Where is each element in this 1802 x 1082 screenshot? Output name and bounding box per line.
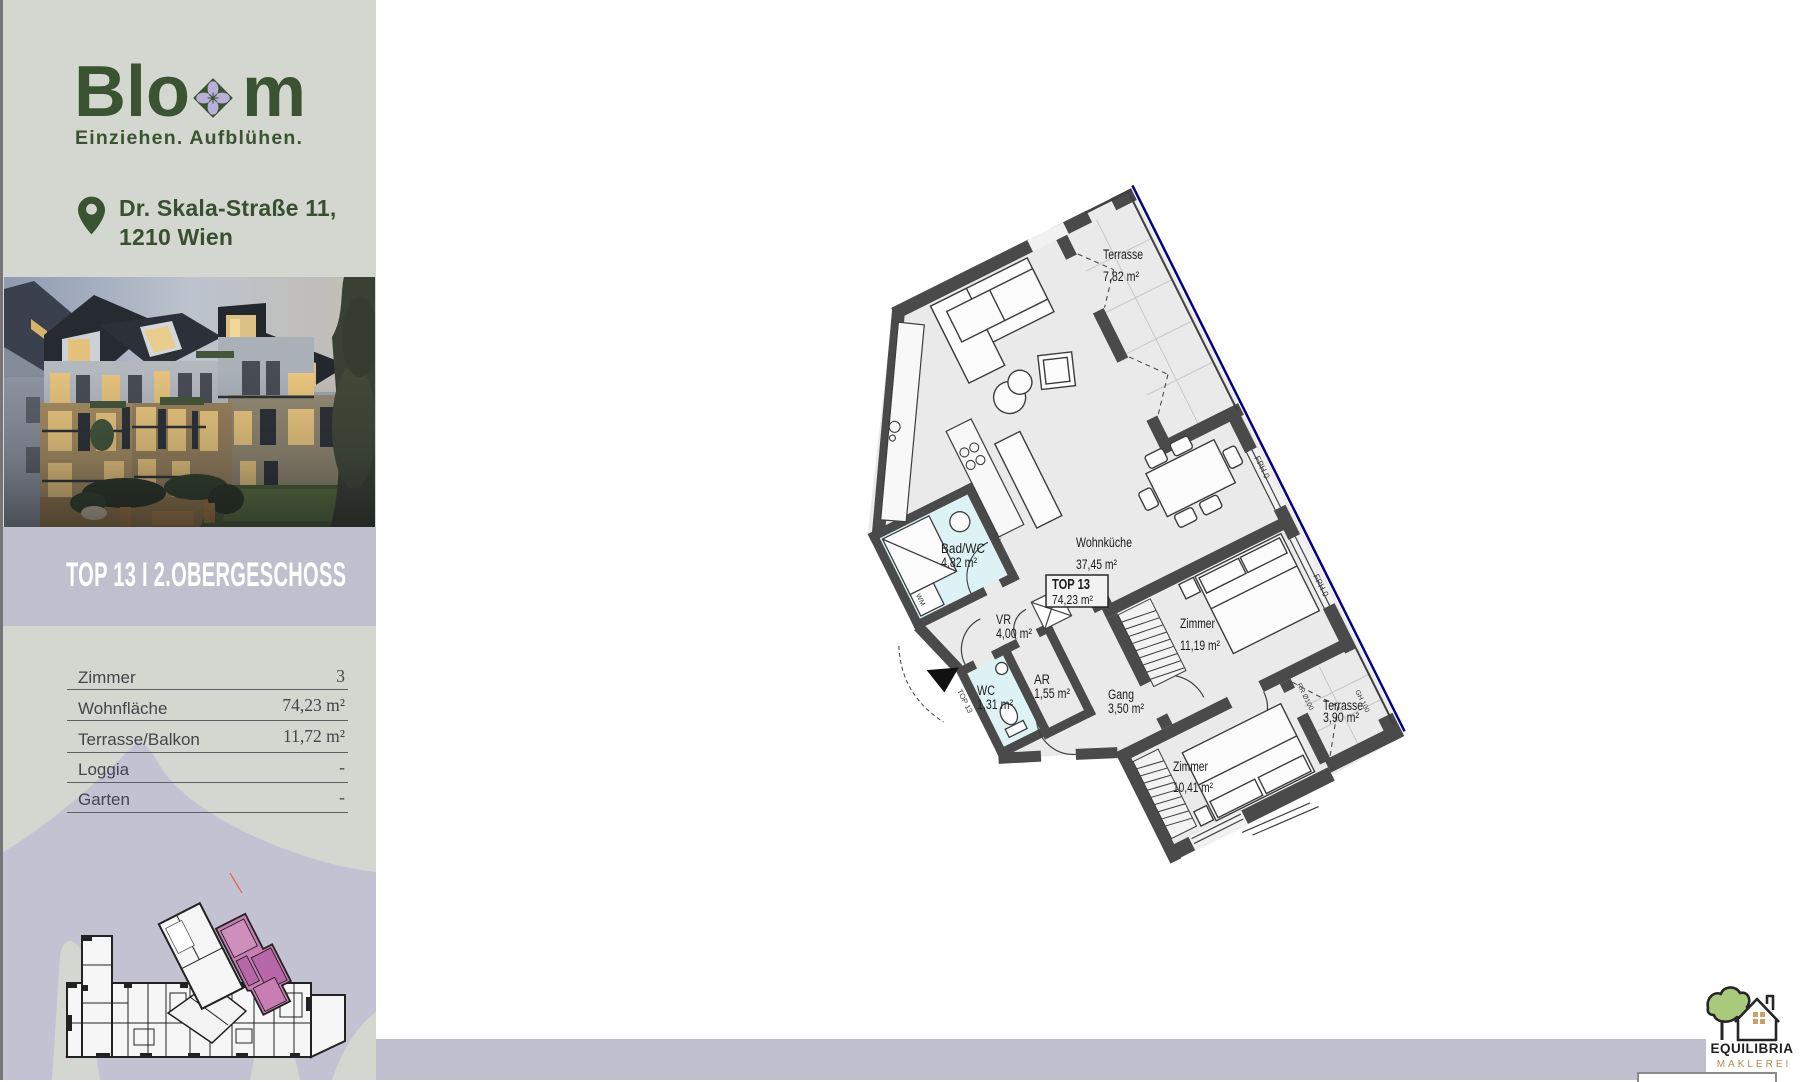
svg-text:Zimmer: Zimmer: [1180, 616, 1215, 631]
svg-text:3,90 m²: 3,90 m²: [1323, 710, 1359, 725]
svg-text:4,82 m²: 4,82 m²: [941, 555, 977, 570]
svg-text:Wohnküche: Wohnküche: [1076, 535, 1132, 550]
svg-text:1,31 m²: 1,31 m²: [977, 697, 1013, 712]
svg-text:Zimmer: Zimmer: [1173, 759, 1208, 774]
svg-text:Gang: Gang: [1108, 687, 1134, 702]
svg-text:74,23 m²: 74,23 m²: [1052, 592, 1094, 607]
svg-text:MAKLEREI: MAKLEREI: [1717, 1059, 1792, 1070]
svg-text:10,41 m²: 10,41 m²: [1173, 780, 1213, 795]
svg-text:EQUILIBRIA: EQUILIBRIA: [1710, 1041, 1793, 1056]
svg-text:AR: AR: [1034, 672, 1050, 687]
svg-text:Terrasse: Terrasse: [1103, 247, 1143, 262]
svg-text:Bad/WC: Bad/WC: [941, 541, 985, 556]
svg-text:11,19 m²: 11,19 m²: [1180, 638, 1220, 653]
svg-text:37,45 m²: 37,45 m²: [1076, 557, 1117, 572]
svg-text:7,82 m²: 7,82 m²: [1103, 269, 1139, 284]
svg-text:1,55 m²: 1,55 m²: [1034, 686, 1070, 701]
svg-text:WC: WC: [977, 683, 995, 698]
svg-text:TOP 13: TOP 13: [1052, 577, 1090, 593]
svg-text:4,00 m²: 4,00 m²: [996, 626, 1032, 641]
svg-text:3,50 m²: 3,50 m²: [1108, 701, 1144, 716]
svg-text:VR: VR: [996, 612, 1011, 627]
